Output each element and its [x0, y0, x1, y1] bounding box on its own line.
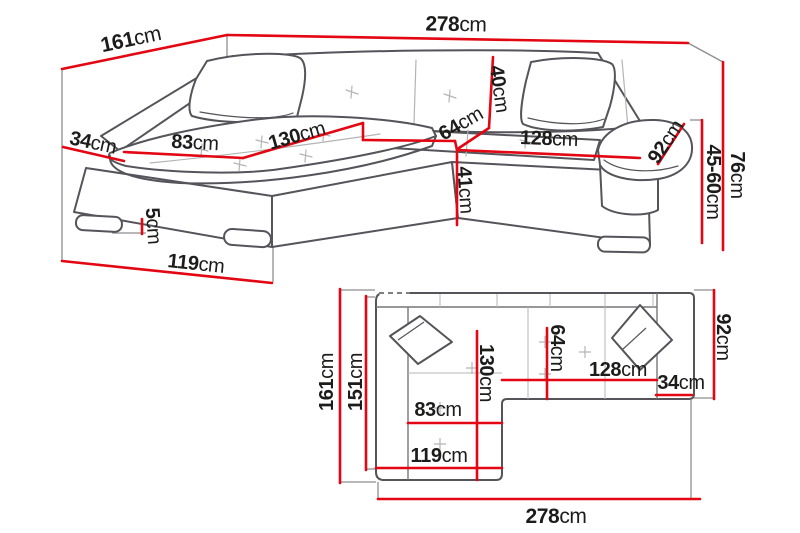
sofa-dimension-diagram: 161cm 278cm 40cm 64cm 128cm 92cm 34cm 83…: [0, 0, 800, 533]
sofa-plan-drawing: [376, 293, 694, 480]
sofa-perspective-drawing: [74, 50, 692, 252]
diagram-linework: [0, 0, 800, 533]
